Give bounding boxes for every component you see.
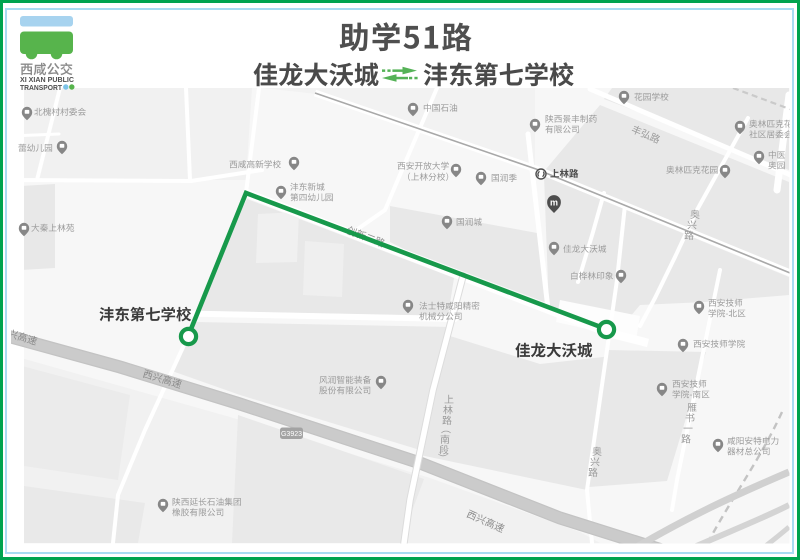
svg-text:TRANSPORT: TRANSPORT — [20, 83, 62, 92]
